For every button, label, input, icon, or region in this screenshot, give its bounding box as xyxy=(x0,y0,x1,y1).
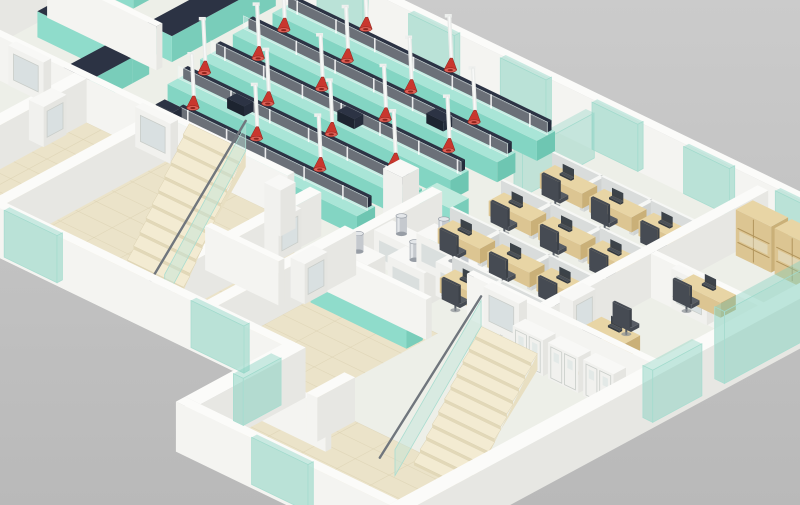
white-column xyxy=(264,175,295,237)
render-canvas xyxy=(0,0,800,505)
floorplan-3d-scene xyxy=(0,0,800,505)
